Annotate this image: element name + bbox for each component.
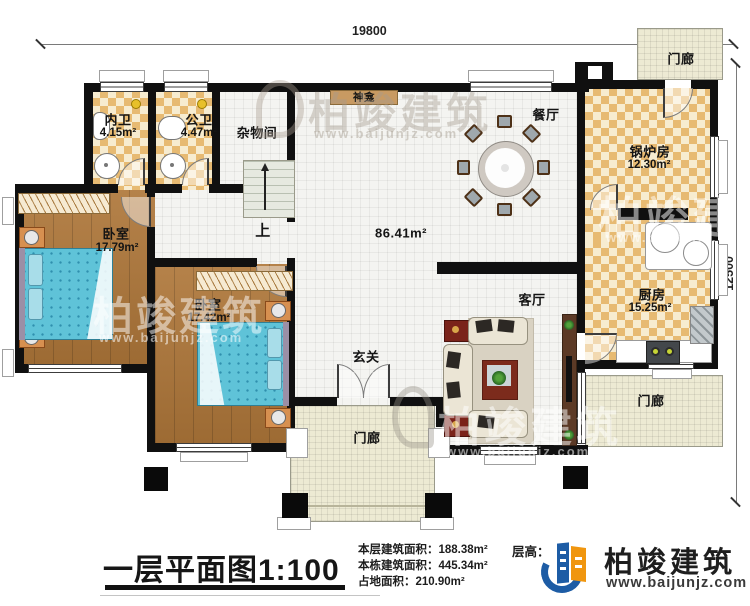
logo-building-orange — [571, 546, 586, 582]
lamp-icon — [271, 303, 286, 318]
stat-floor-area: 本层建筑面积：188.38m² — [358, 541, 488, 557]
room-label-boiler: 锅炉房 — [630, 142, 671, 161]
wall — [148, 83, 156, 190]
column — [282, 493, 308, 518]
stat-label: 本层建筑面积： — [358, 544, 439, 556]
hall-area-label: 86.41m² — [375, 226, 427, 241]
porch-bottom-label: 门廊 — [353, 428, 380, 447]
column-base — [420, 517, 454, 530]
room-label-bedroom-left: 卧室 — [102, 224, 129, 243]
logo-building-window — [575, 557, 582, 560]
lamp-icon — [271, 410, 286, 425]
room-label-storage: 杂物间 — [237, 123, 278, 142]
dimension-line-top — [40, 44, 733, 45]
floorplan-page: 19800 12500 — [0, 0, 750, 606]
chair-icon — [497, 203, 512, 216]
dining-table-center — [501, 164, 509, 172]
stat-value: 188.38m² — [439, 544, 488, 556]
wall — [577, 363, 585, 372]
column — [563, 466, 588, 489]
stat-value: 210.90m² — [416, 576, 465, 588]
room-label-dining: 餐厅 — [532, 105, 559, 124]
chair-icon — [497, 115, 512, 128]
room-area-bedroom-center: 17.42m² — [188, 312, 231, 324]
title-underline — [105, 585, 345, 590]
room-area-bath-ensuite: 4.15m² — [100, 127, 136, 139]
room-label-bath-ensuite: 内卫 — [104, 110, 131, 129]
wall — [437, 262, 585, 274]
burner-icon — [651, 347, 660, 356]
plant-icon — [564, 320, 574, 330]
plan-title: 一层平面图1:100 — [103, 545, 340, 589]
sink-drain — [104, 163, 108, 167]
wall — [577, 274, 585, 333]
room-label-kitchen: 厨房 — [638, 285, 665, 304]
pillow — [28, 254, 43, 286]
wall — [147, 184, 155, 197]
stairs-arrow — [264, 170, 266, 210]
wall — [577, 83, 585, 262]
tv-icon — [566, 356, 572, 402]
staircase — [243, 160, 295, 218]
sofa-cushion — [446, 381, 461, 398]
wall-lamp-icon — [131, 99, 141, 109]
plan-scale: 1:100 — [258, 554, 340, 587]
porch-right-label: 门廊 — [637, 391, 664, 410]
logo-building-window — [560, 551, 566, 554]
chimney-flue — [588, 66, 602, 79]
room-label-foyer: 玄关 — [352, 347, 379, 366]
basin-icon — [683, 240, 709, 266]
plant-icon — [564, 430, 574, 440]
pillow — [267, 328, 282, 358]
dimension-line-right — [736, 64, 737, 504]
title-block: 一层平面图1:100 本层建筑面积：188.38m² 本栋建筑面积：445.34… — [0, 533, 750, 606]
sofa-cushion — [477, 415, 494, 429]
wall — [15, 184, 118, 193]
porch-right-floor — [585, 375, 723, 447]
room-area-kitchen: 15.25m² — [629, 302, 672, 314]
logo-building-window — [560, 559, 566, 562]
stat-value: 445.34m² — [439, 560, 488, 572]
basin-icon — [650, 223, 680, 253]
sofa-cushion — [475, 319, 493, 333]
window — [28, 364, 122, 373]
room-area-bath-public: 4.47m² — [181, 127, 217, 139]
window-sill — [468, 70, 554, 82]
stat-label: 本栋建筑面积： — [358, 560, 439, 572]
stat-label: 占地面积： — [358, 576, 416, 588]
window — [577, 372, 586, 444]
column-base — [277, 517, 311, 530]
chair-icon — [457, 160, 470, 175]
pillow — [28, 288, 43, 320]
room-label-living: 客厅 — [518, 290, 545, 309]
brand-website: www.baijunjz.com — [606, 575, 747, 591]
stairs-up-label: 上 — [255, 220, 271, 241]
chair-icon — [537, 160, 550, 175]
porch-step-line — [291, 505, 434, 507]
stat-footprint-area: 占地面积：210.90m² — [358, 573, 465, 589]
mat-medallion — [452, 421, 459, 428]
porch-side-base — [286, 428, 308, 458]
window-sill — [652, 369, 692, 379]
bed-headboard — [283, 322, 289, 406]
window — [480, 446, 538, 455]
lamp-icon — [24, 230, 39, 245]
title-underline-thin — [100, 595, 380, 596]
mat-medallion — [452, 326, 459, 333]
window — [176, 443, 252, 452]
logo-building-window — [575, 565, 582, 568]
window-sill — [718, 244, 728, 296]
column — [144, 467, 168, 491]
window-sill — [163, 70, 209, 82]
logo-building-blue — [557, 542, 569, 583]
sink-drain — [170, 163, 174, 167]
room-area-bedroom-left: 17.79m² — [96, 242, 139, 254]
window-sill — [484, 455, 536, 465]
window-sill — [2, 349, 14, 377]
room-area-boiler: 12.30m² — [628, 159, 671, 171]
plan-title-text: 一层平面图 — [103, 554, 258, 587]
wall — [618, 208, 688, 220]
window-sill — [99, 70, 145, 82]
room-label-bedroom-center: 卧室 — [194, 295, 221, 314]
dimension-top-value: 19800 — [352, 24, 387, 38]
stairs-arrow-head — [261, 163, 269, 171]
burner-icon — [665, 347, 674, 356]
logo-building-window — [560, 567, 566, 570]
window — [100, 82, 144, 92]
wardrobe — [196, 271, 293, 291]
floorplan-canvas: 19800 12500 — [0, 0, 750, 533]
window-sill — [180, 452, 248, 462]
window-sill — [2, 197, 14, 225]
blanket-fold — [72, 249, 112, 339]
plant-icon — [492, 371, 506, 385]
porch-top-label: 门廊 — [667, 49, 694, 68]
window — [470, 82, 552, 92]
brand-logo-icon — [541, 537, 599, 595]
wall — [147, 258, 257, 267]
wall — [390, 397, 436, 406]
room-label-bath-public: 公卫 — [185, 110, 212, 129]
sofa-cushion — [497, 319, 514, 333]
shrine-label: 神龛 — [353, 90, 375, 105]
bed-headboard — [19, 248, 25, 340]
blanket-fold — [200, 323, 240, 405]
pillow — [267, 360, 282, 390]
sofa-cushion — [446, 351, 461, 369]
wall — [84, 83, 93, 190]
wall-lamp-icon — [197, 99, 207, 109]
sink-unit-icon — [690, 306, 714, 344]
wall — [147, 227, 155, 451]
column — [425, 493, 452, 518]
wardrobe — [18, 193, 110, 214]
window — [164, 82, 208, 92]
stat-building-area: 本栋建筑面积：445.34m² — [358, 557, 488, 573]
window-sill — [718, 140, 728, 194]
